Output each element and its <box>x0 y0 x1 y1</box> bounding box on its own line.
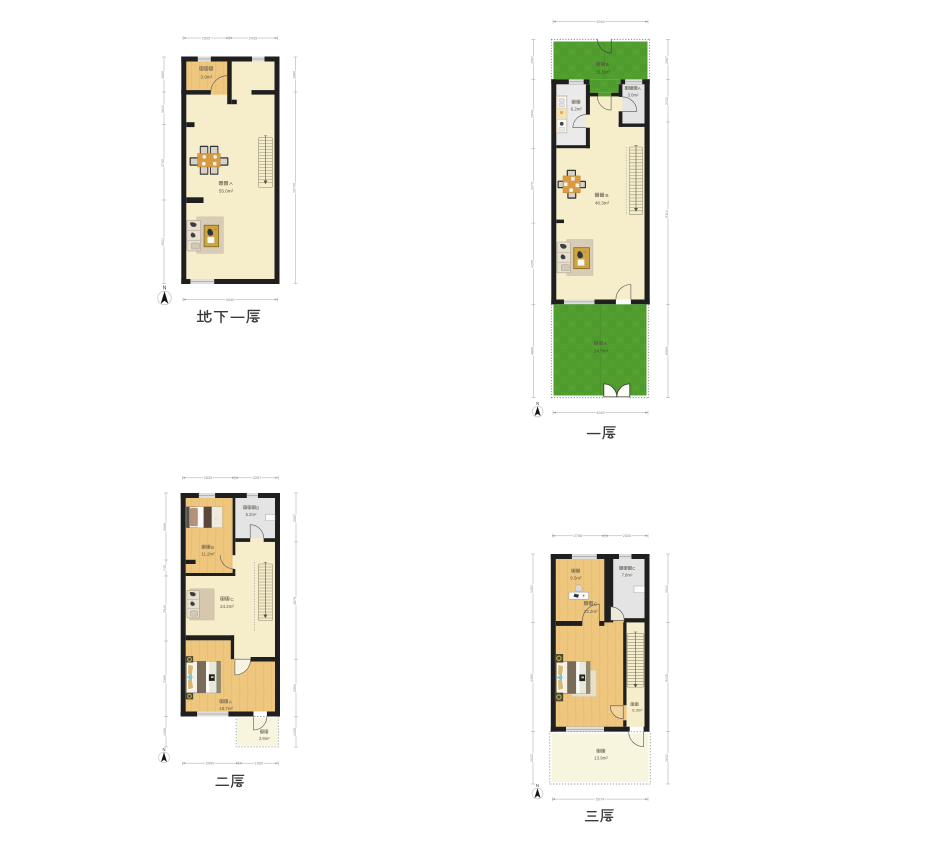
svg-text:11.5m²: 11.5m² <box>596 70 610 75</box>
svg-text:2132: 2132 <box>665 97 669 105</box>
svg-text:N: N <box>162 747 165 752</box>
svg-text:1435: 1435 <box>293 728 297 736</box>
svg-text:2067: 2067 <box>293 514 297 522</box>
svg-text:745: 745 <box>163 565 167 571</box>
svg-text:6069: 6069 <box>665 347 669 355</box>
svg-text:3740: 3740 <box>161 159 165 167</box>
svg-text:5.2m²: 5.2m² <box>246 512 257 517</box>
svg-text:2505: 2505 <box>202 36 210 40</box>
svg-text:55.0m²: 55.0m² <box>219 189 234 194</box>
svg-text:18.7m²: 18.7m² <box>219 706 233 711</box>
svg-text:3375: 3375 <box>530 182 534 190</box>
svg-text:B: B <box>256 505 259 510</box>
svg-text:2990: 2990 <box>206 762 214 766</box>
svg-text:2940: 2940 <box>163 605 167 613</box>
svg-text:9.5m²: 9.5m² <box>570 575 582 580</box>
svg-text:2067: 2067 <box>665 56 669 64</box>
svg-text:2639: 2639 <box>204 476 212 480</box>
svg-text:6.3m²: 6.3m² <box>632 708 643 713</box>
svg-text:2768: 2768 <box>574 534 582 538</box>
svg-text:1960: 1960 <box>255 762 263 766</box>
svg-text:9445: 9445 <box>665 674 669 682</box>
svg-text:1880: 1880 <box>293 71 297 79</box>
svg-text:24.7m²: 24.7m² <box>594 349 609 354</box>
svg-text:13.9m²: 13.9m² <box>594 756 608 761</box>
svg-text:B: B <box>605 193 608 199</box>
svg-text:C: C <box>632 566 635 571</box>
svg-text:3006: 3006 <box>163 523 167 531</box>
svg-text:11.2m²: 11.2m² <box>201 552 215 557</box>
svg-text:4940: 4940 <box>596 411 604 415</box>
svg-text:3390: 3390 <box>163 675 167 683</box>
svg-text:4940: 4940 <box>596 20 604 24</box>
svg-text:B: B <box>211 545 214 550</box>
svg-text:1452: 1452 <box>530 585 534 593</box>
svg-text:2940: 2940 <box>530 110 534 118</box>
svg-text:4465: 4465 <box>530 674 534 682</box>
svg-text:3.9m²: 3.9m² <box>200 74 212 79</box>
svg-text:5074: 5074 <box>596 798 604 802</box>
svg-text:2435: 2435 <box>249 36 257 40</box>
svg-text:1360: 1360 <box>163 728 167 736</box>
svg-text:4034: 4034 <box>161 238 165 246</box>
svg-text:2632: 2632 <box>665 754 669 762</box>
svg-text:A: A <box>229 699 232 704</box>
svg-text:9114: 9114 <box>665 210 669 218</box>
svg-text:2067: 2067 <box>530 56 534 64</box>
svg-text:2267: 2267 <box>253 476 261 480</box>
svg-text:A: A <box>638 86 641 91</box>
svg-text:4879: 4879 <box>293 597 297 605</box>
svg-text:4205: 4205 <box>530 260 534 268</box>
svg-text:2530: 2530 <box>623 534 631 538</box>
svg-text:48.3m²: 48.3m² <box>595 201 610 206</box>
svg-text:3.0m²: 3.0m² <box>628 92 639 97</box>
svg-text:7.8m²: 7.8m² <box>622 572 633 577</box>
svg-text:2632: 2632 <box>530 754 534 762</box>
svg-text:1880: 1880 <box>161 71 165 79</box>
svg-text:2504: 2504 <box>293 684 297 692</box>
svg-text:1621: 1621 <box>161 105 165 113</box>
svg-text:10745: 10745 <box>293 183 297 193</box>
svg-text:4880: 4880 <box>530 347 534 355</box>
svg-text:N: N <box>536 401 539 406</box>
svg-text:2.9m²: 2.9m² <box>259 736 270 741</box>
svg-text:B: B <box>606 62 609 67</box>
svg-text:4940: 4940 <box>226 298 234 302</box>
svg-text:N: N <box>163 286 167 292</box>
svg-text:24.2m²: 24.2m² <box>220 604 234 609</box>
svg-text:N: N <box>536 783 539 788</box>
svg-text:6.2m²: 6.2m² <box>571 107 583 112</box>
svg-text:1541: 1541 <box>665 585 669 593</box>
svg-text:23.2m²: 23.2m² <box>584 609 598 614</box>
